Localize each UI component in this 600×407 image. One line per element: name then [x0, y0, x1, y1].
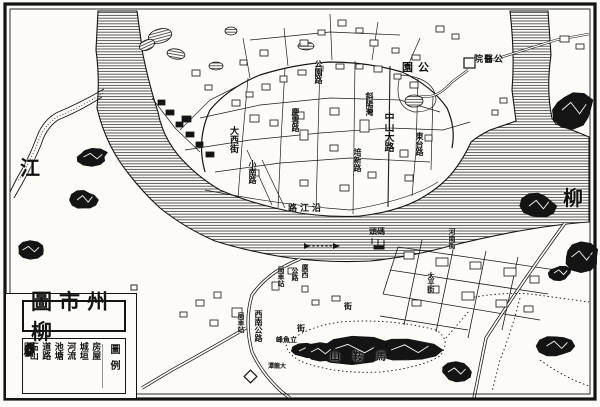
legend-label: 道路 [41, 342, 50, 364]
bridge-marker [244, 370, 257, 383]
small-building-marker [131, 285, 137, 290]
houses-symbol-icon [23, 339, 36, 359]
legend-item-pond: 池塘 [52, 342, 65, 390]
map-title: 圖市州柳 [22, 300, 126, 332]
legend-item-houses: 房屋 [90, 342, 103, 390]
legend-label: 房屋 [91, 342, 100, 364]
hospital-road [420, 70, 468, 97]
legend-label: 河流 [66, 342, 75, 364]
southeast-road [474, 223, 565, 398]
legend-item-river: 河流 [65, 342, 78, 390]
southwest-branch-road [142, 328, 246, 388]
legend: 石山 道路 池塘 河流 [22, 338, 126, 394]
legend-heading: 圖例 [102, 344, 121, 388]
hospital-building [464, 58, 475, 68]
legend-label: 城垣 [79, 342, 88, 364]
legend-item-city-wall: 城垣 [77, 342, 90, 390]
corner-panel: 圖市州柳 石山 道路 池塘 河流 [6, 293, 137, 398]
map-canvas: 江柳園公院醫公公園路斜陽灣慶雲路大西街中山大路東台路培新路小南路路江沿頭碼廣西公… [0, 0, 600, 407]
west-stream [10, 89, 104, 198]
legend-item-road: 道路 [40, 342, 53, 390]
legend-label: 池塘 [54, 342, 63, 364]
